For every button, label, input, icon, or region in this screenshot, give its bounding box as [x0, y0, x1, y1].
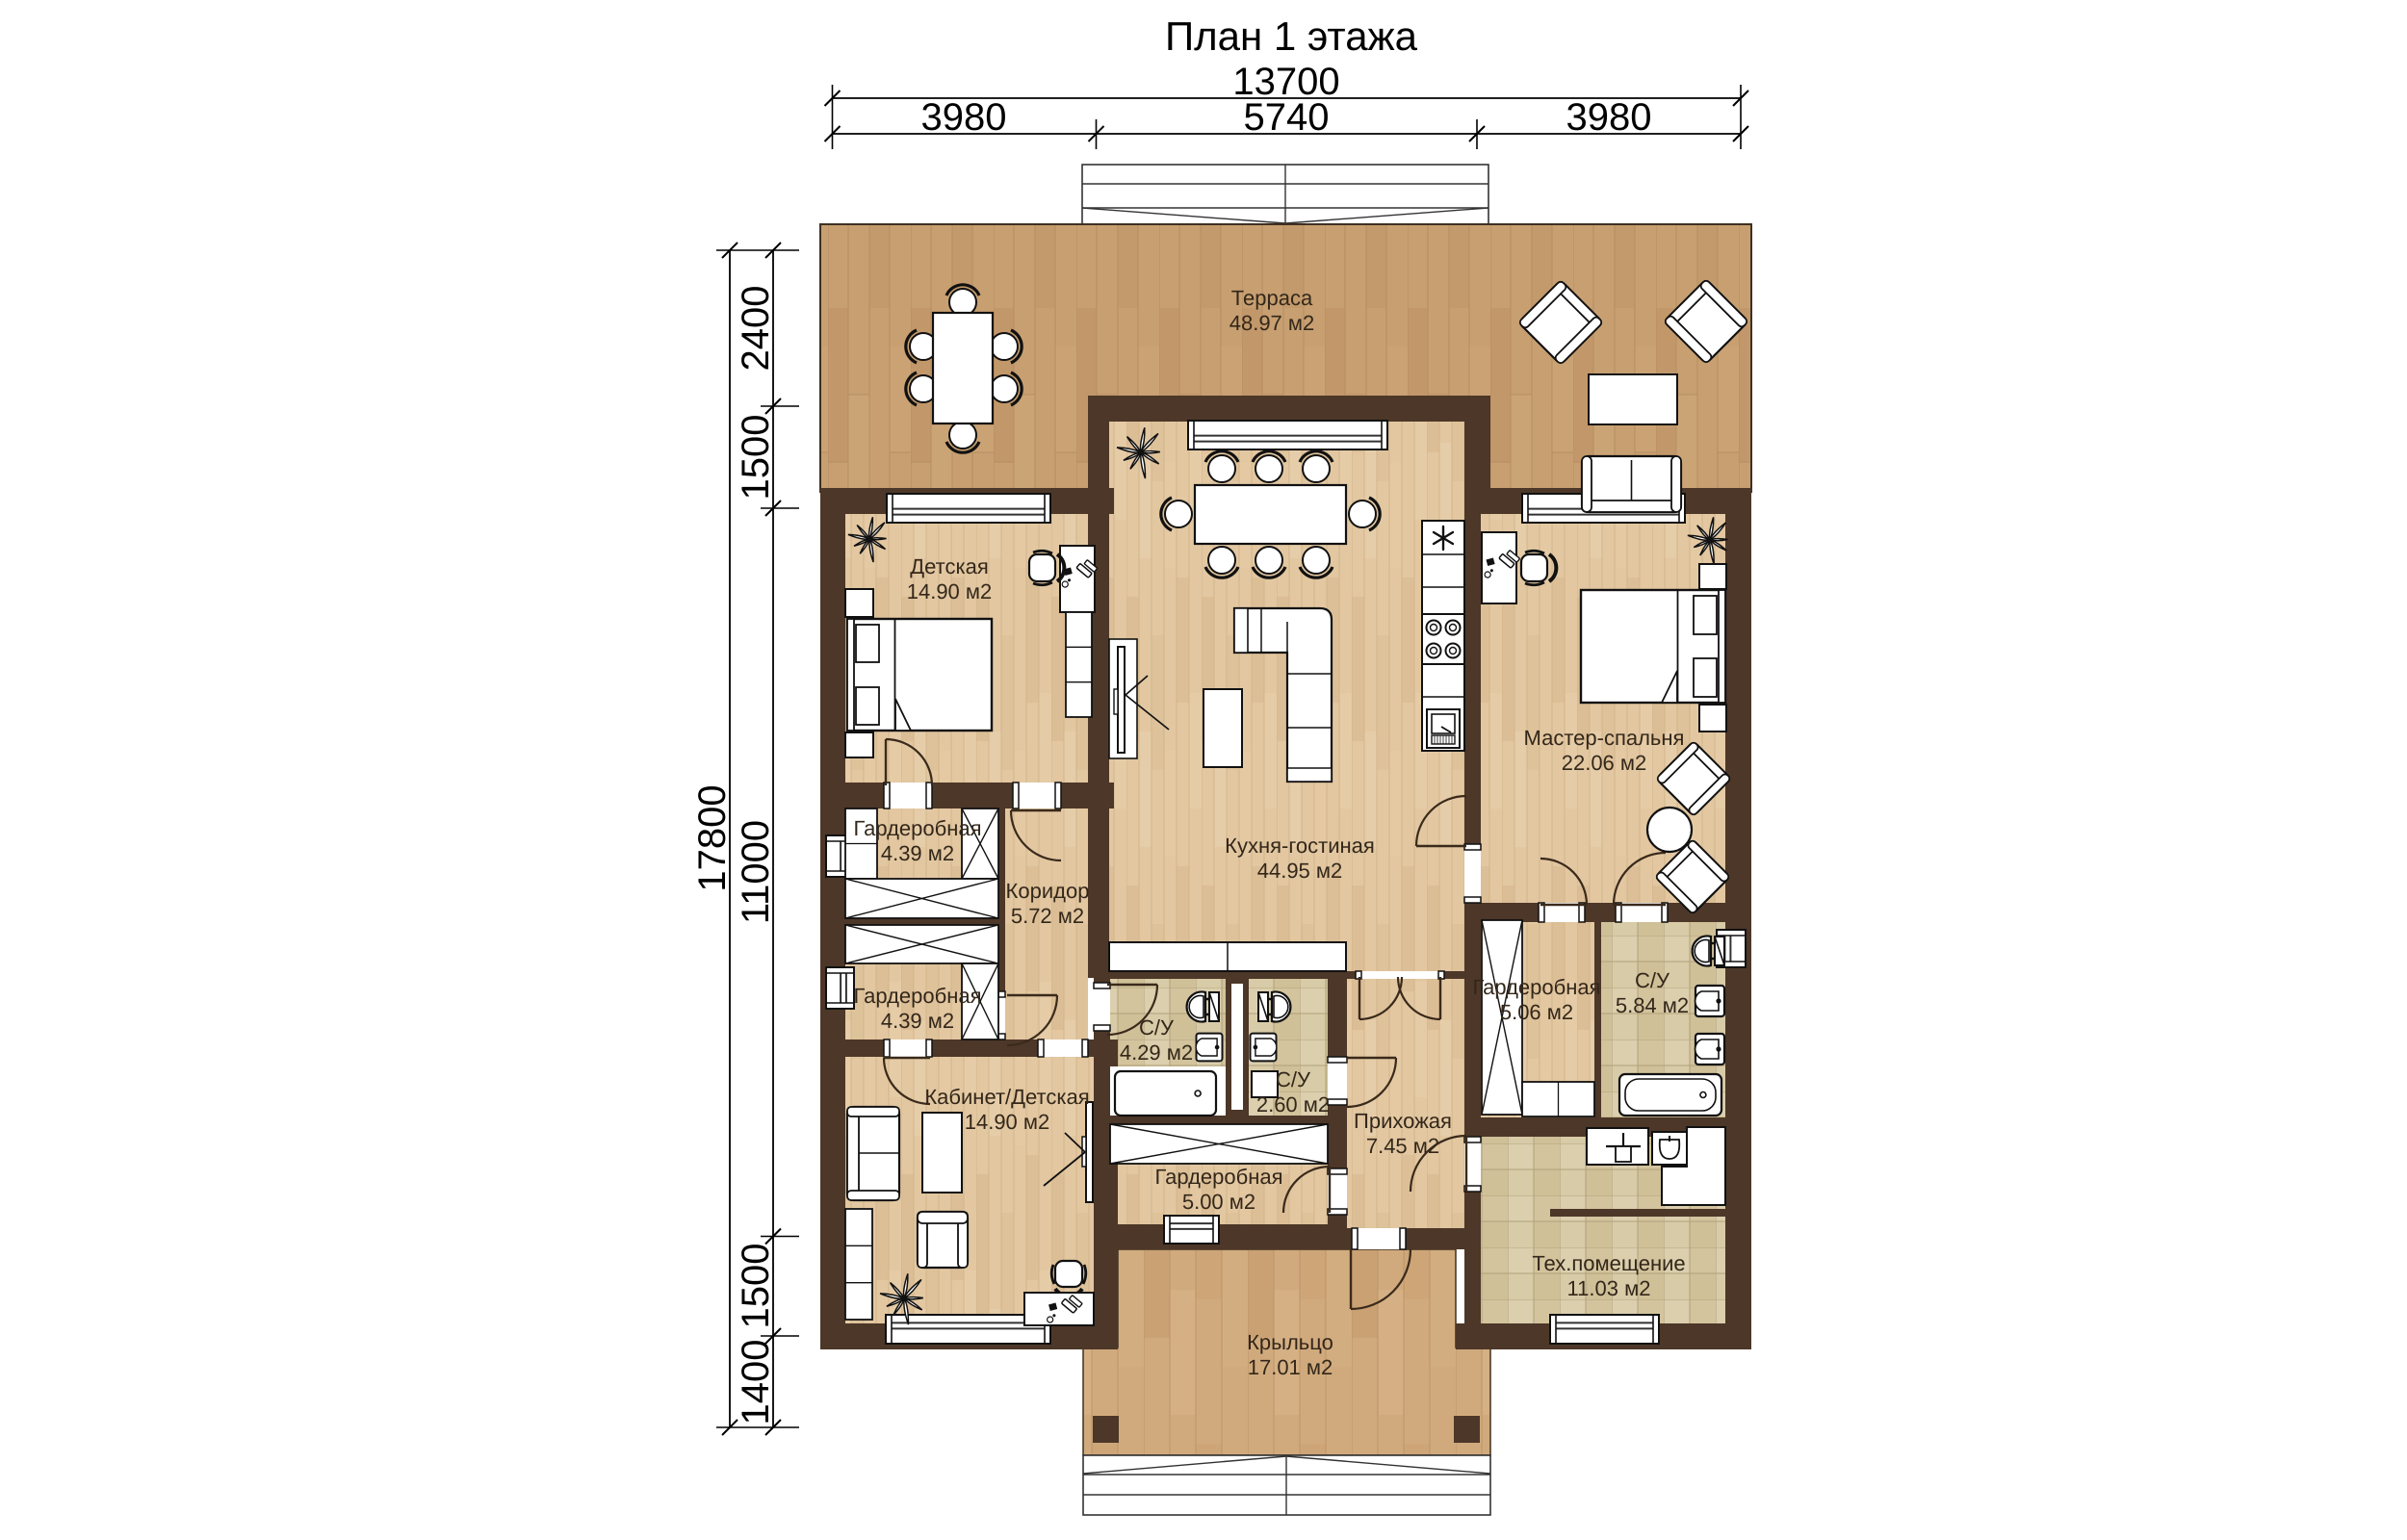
svg-text:Детская: Детская	[910, 554, 989, 578]
svg-text:5.00 м2: 5.00 м2	[1182, 1190, 1255, 1214]
svg-text:Гардеробная: Гардеробная	[853, 984, 981, 1008]
svg-text:17800: 17800	[691, 784, 734, 891]
svg-text:5.72 м2: 5.72 м2	[1011, 904, 1084, 928]
svg-text:3980: 3980	[921, 96, 1007, 139]
svg-text:Мастер-спальня: Мастер-спальня	[1524, 726, 1685, 750]
svg-text:План 1 этажа: План 1 этажа	[1165, 13, 1418, 59]
svg-text:5.84 м2: 5.84 м2	[1616, 993, 1689, 1017]
svg-text:Коридор: Коридор	[1006, 879, 1090, 903]
svg-text:С/У: С/У	[1635, 968, 1670, 992]
svg-text:22.06 м2: 22.06 м2	[1562, 751, 1647, 775]
svg-text:Тех.помещение: Тех.помещение	[1532, 1251, 1685, 1275]
svg-text:1400: 1400	[735, 1340, 777, 1425]
svg-text:4.39 м2: 4.39 м2	[881, 1009, 954, 1033]
svg-text:5.06 м2: 5.06 м2	[1500, 1000, 1573, 1024]
svg-text:Прихожая: Прихожая	[1354, 1109, 1452, 1133]
svg-text:4.39 м2: 4.39 м2	[881, 841, 954, 865]
svg-text:14.90 м2: 14.90 м2	[907, 579, 993, 603]
svg-text:2.60 м2: 2.60 м2	[1256, 1092, 1330, 1116]
svg-text:48.97 м2: 48.97 м2	[1229, 311, 1315, 335]
svg-text:11.03 м2: 11.03 м2	[1567, 1276, 1651, 1300]
svg-text:1500: 1500	[735, 1244, 777, 1329]
svg-text:3980: 3980	[1566, 96, 1652, 139]
svg-text:4.29 м2: 4.29 м2	[1120, 1040, 1193, 1065]
svg-text:Гардеробная: Гардеробная	[853, 816, 981, 840]
svg-text:2400: 2400	[735, 286, 777, 372]
svg-text:1500: 1500	[735, 415, 777, 500]
svg-text:Кабинет/Детская: Кабинет/Детская	[924, 1085, 1089, 1109]
svg-text:Кухня-гостиная: Кухня-гостиная	[1225, 834, 1375, 858]
svg-text:С/У: С/У	[1139, 1015, 1175, 1039]
svg-text:С/У: С/У	[1276, 1067, 1311, 1091]
svg-text:Гардеробная: Гардеробная	[1472, 975, 1600, 999]
svg-text:Крыльцо: Крыльцо	[1247, 1330, 1333, 1354]
svg-text:5740: 5740	[1244, 96, 1330, 139]
svg-text:14.90 м2: 14.90 м2	[965, 1110, 1050, 1134]
svg-text:Гардеробная: Гардеробная	[1154, 1165, 1282, 1189]
svg-text:7.45 м2: 7.45 м2	[1366, 1134, 1439, 1158]
svg-text:17.01 м2: 17.01 м2	[1248, 1355, 1333, 1379]
svg-text:11000: 11000	[735, 820, 777, 924]
svg-text:Терраса: Терраса	[1231, 286, 1313, 310]
svg-text:44.95 м2: 44.95 м2	[1257, 859, 1343, 883]
